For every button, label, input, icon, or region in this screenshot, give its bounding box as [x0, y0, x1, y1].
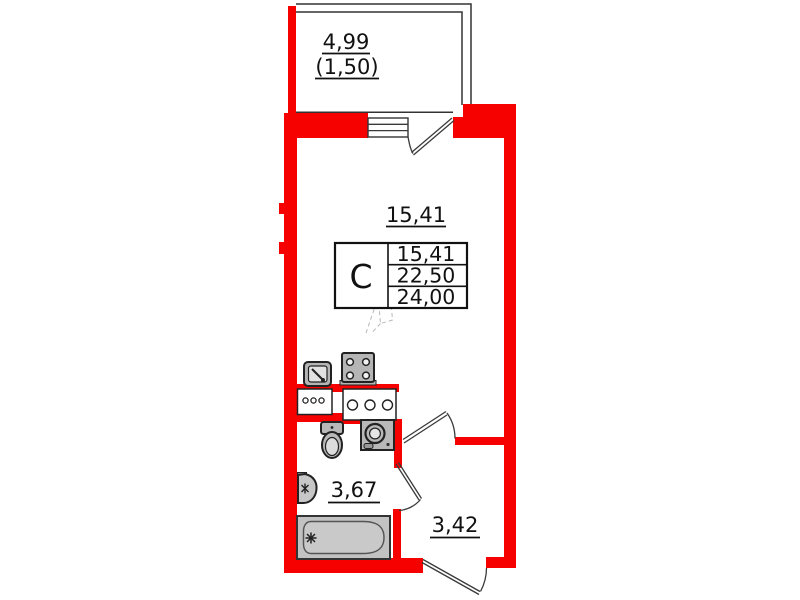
hallway-area-label: 3,42 [432, 513, 479, 537]
washing-machine-icon [361, 420, 394, 450]
counter-unit-small-icon [298, 389, 333, 415]
living-area-label: 15,41 [386, 203, 446, 227]
apartment-stamp: С 15,41 22,50 24,00 [335, 242, 467, 309]
bathtub-drain [306, 533, 317, 544]
apartment-type-letter: С [349, 257, 372, 296]
bathroom-door [396, 463, 422, 511]
left-wall-notch-2 [279, 242, 284, 254]
hallway-door [403, 412, 455, 444]
balcony-window [368, 118, 408, 137]
kitchen-sink-icon [304, 362, 331, 386]
bottom-right-wall-stub [486, 557, 516, 568]
top-right-corner-step [453, 117, 465, 138]
entrance-door [422, 560, 487, 595]
stamp-row-total-area-with-balcony: 24,00 [397, 285, 456, 309]
floor-plan: 4,99 (1,50) 15,41 3,67 3,42 С 15,41 22,5… [0, 0, 800, 600]
balcony-area-label: 4,99 [323, 30, 370, 54]
stove-icon [340, 353, 376, 385]
bathroom-door-side-wall [393, 509, 401, 562]
left-wall-notch-1 [279, 203, 284, 214]
right-wall [504, 130, 516, 568]
stamp-row-total-area: 22,50 [397, 264, 456, 288]
stamp-row-living-area: 15,41 [397, 242, 456, 266]
balcony-left-wall [288, 6, 296, 113]
bottom-wall [284, 558, 423, 573]
bathtub-icon [297, 516, 390, 559]
washer-side-wall [394, 419, 402, 468]
balcony-reduced-area-label: (1,50) [315, 55, 378, 79]
balcony-door [408, 118, 454, 155]
left-wall [284, 113, 297, 573]
hallway-top-wall [455, 437, 504, 445]
toilet-icon [321, 422, 343, 458]
counter-unit-large-icon [343, 389, 396, 420]
bathroom-area-label: 3,67 [331, 478, 378, 502]
wash-basin-icon [298, 473, 317, 504]
floor-plan-drawing: 4,99 (1,50) 15,41 3,67 3,42 С 15,41 22,5… [0, 0, 800, 600]
